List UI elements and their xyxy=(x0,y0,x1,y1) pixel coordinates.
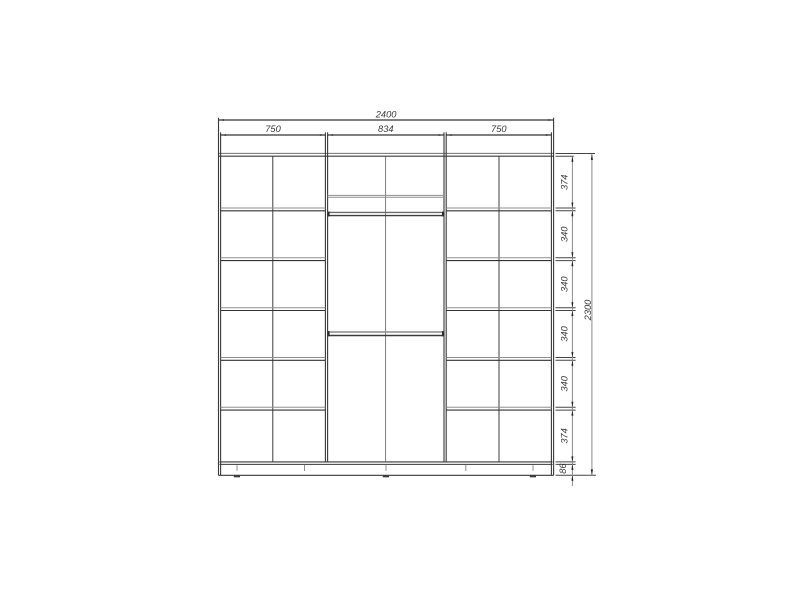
svg-text:340: 340 xyxy=(559,276,569,292)
svg-text:86: 86 xyxy=(558,463,568,474)
svg-text:2400: 2400 xyxy=(375,109,398,119)
svg-text:2300: 2300 xyxy=(583,299,593,322)
svg-text:340: 340 xyxy=(559,325,569,341)
svg-text:340: 340 xyxy=(559,226,569,242)
svg-text:340: 340 xyxy=(559,375,569,391)
svg-text:750: 750 xyxy=(265,124,281,134)
svg-text:834: 834 xyxy=(378,124,394,134)
svg-text:750: 750 xyxy=(491,124,507,134)
svg-text:374: 374 xyxy=(559,175,569,191)
svg-text:374: 374 xyxy=(559,428,569,444)
